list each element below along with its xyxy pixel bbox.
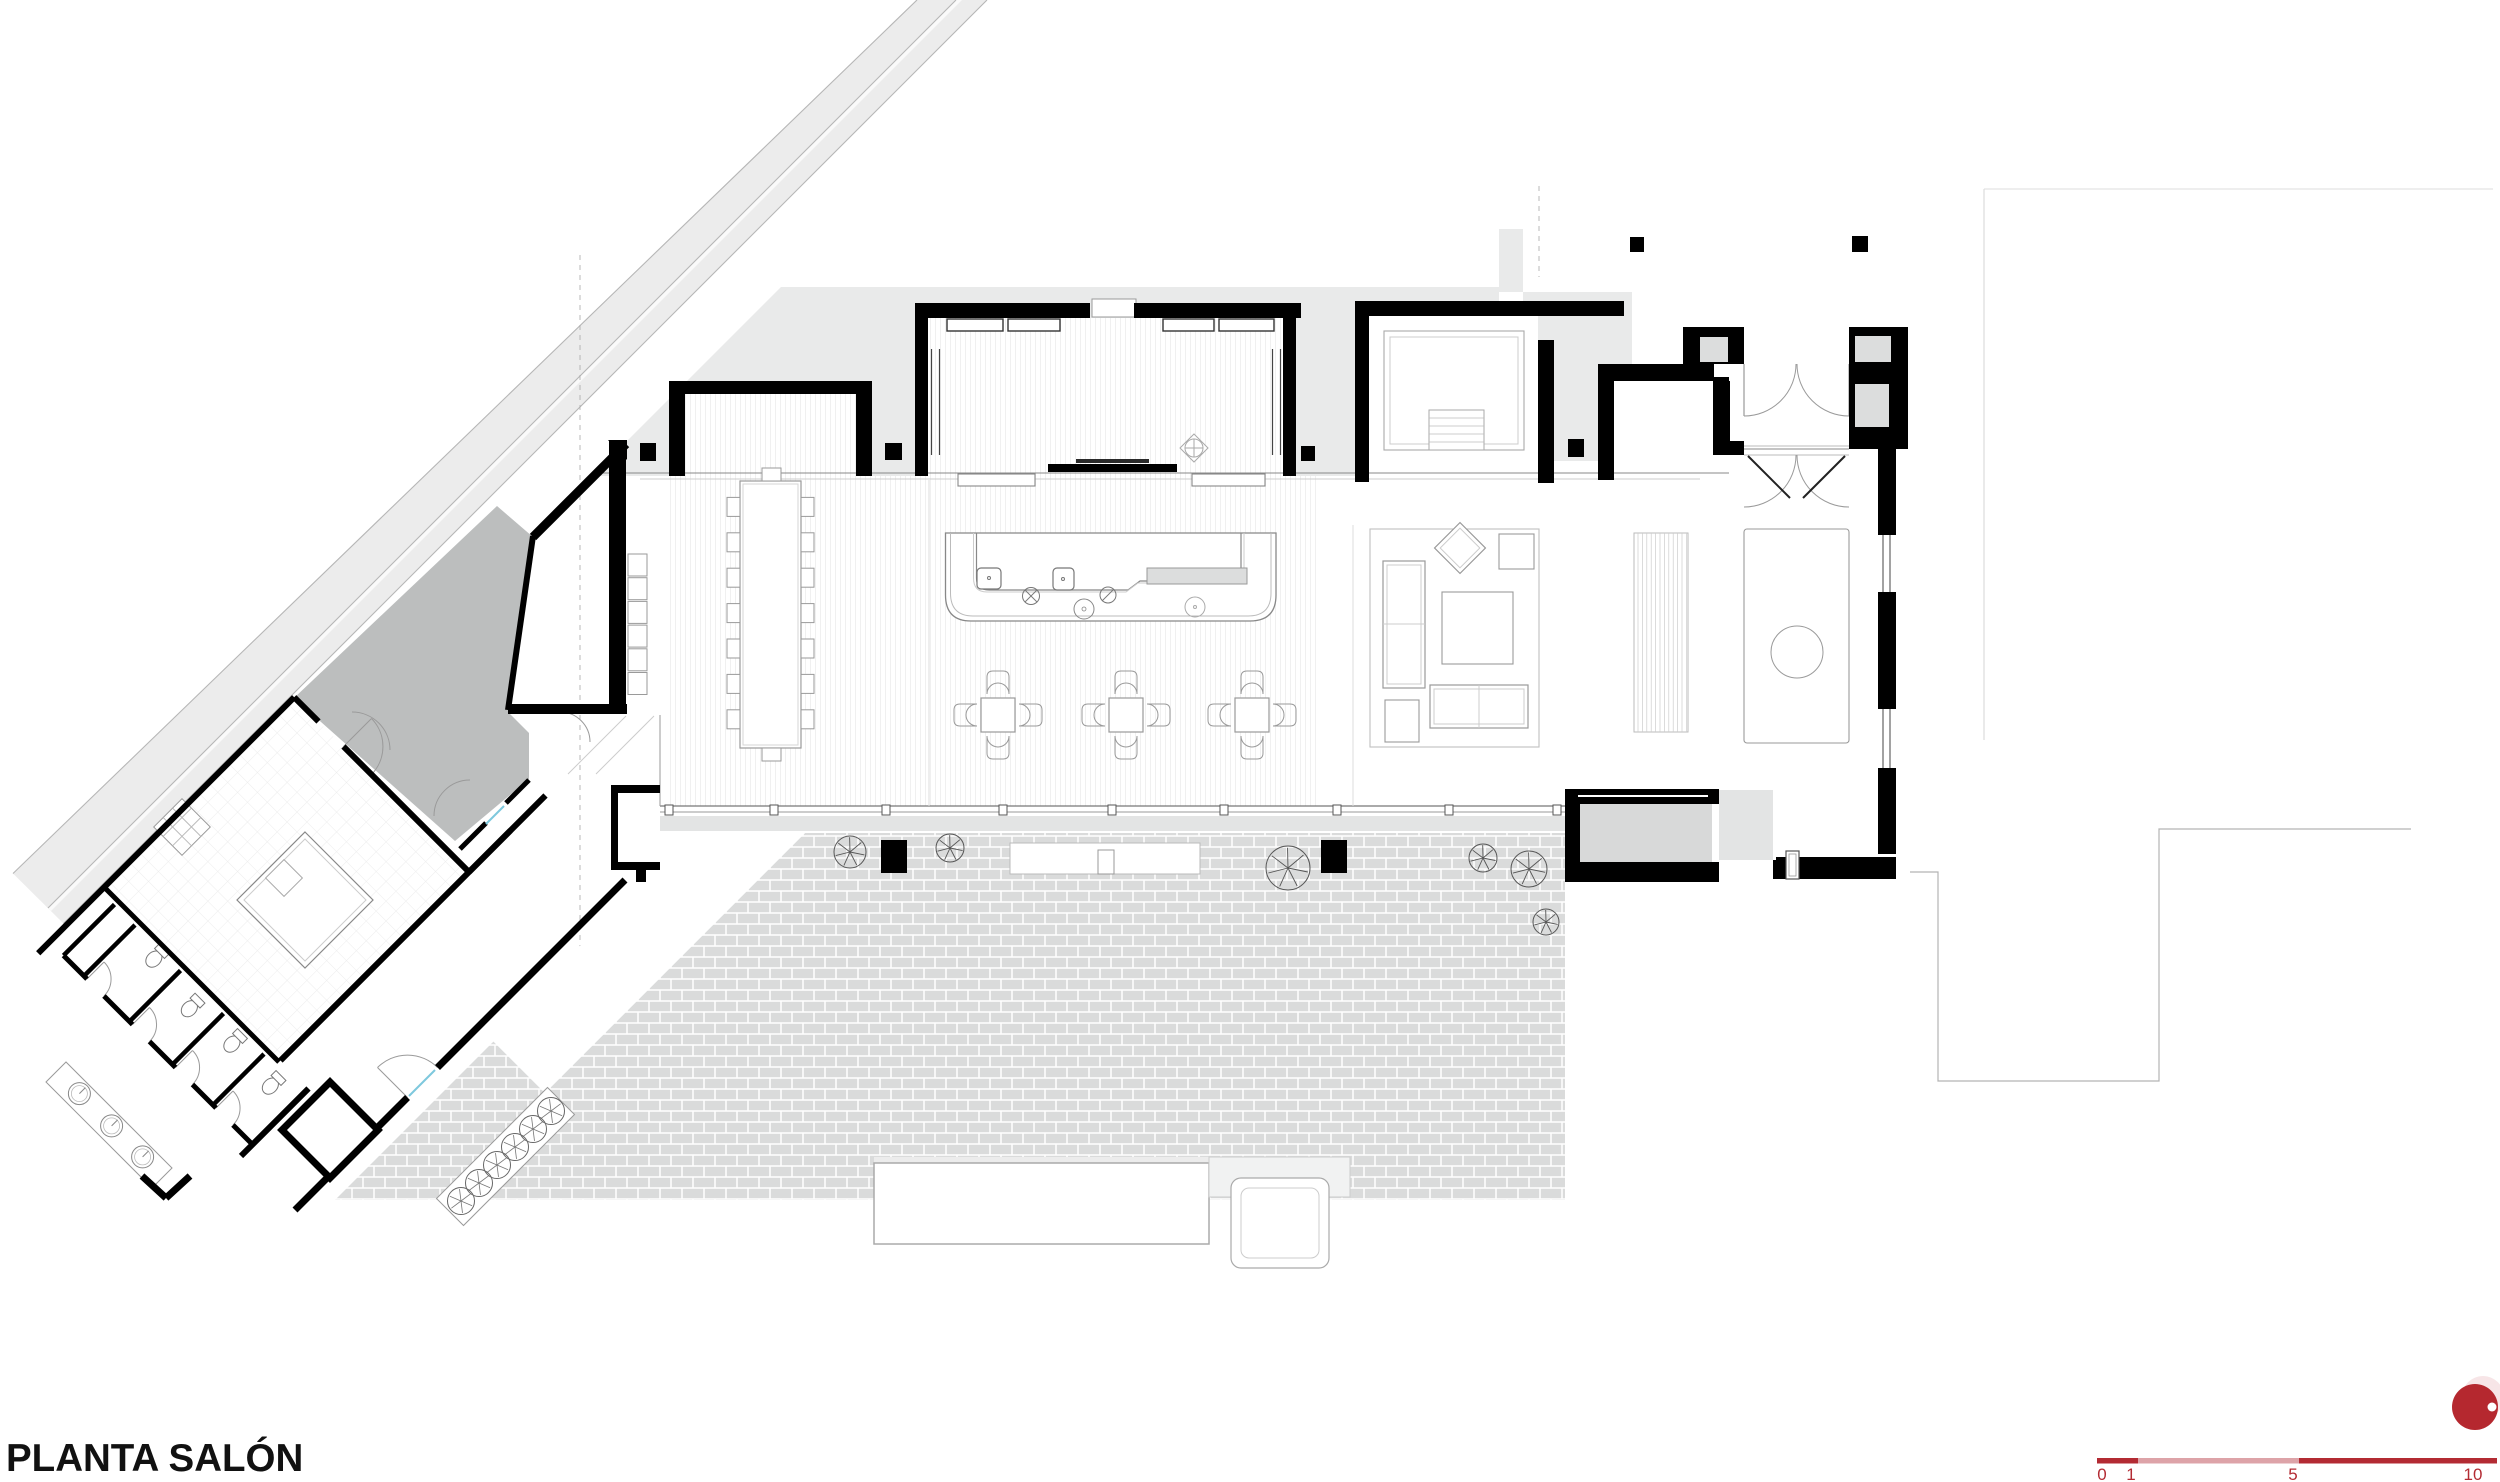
svg-text:0: 0 xyxy=(2097,1465,2106,1482)
svg-text:PLANTA SALÓN: PLANTA SALÓN xyxy=(6,1436,303,1480)
svg-text:5: 5 xyxy=(2288,1465,2297,1482)
svg-text:1: 1 xyxy=(2126,1465,2135,1482)
svg-text:10: 10 xyxy=(2464,1465,2483,1482)
